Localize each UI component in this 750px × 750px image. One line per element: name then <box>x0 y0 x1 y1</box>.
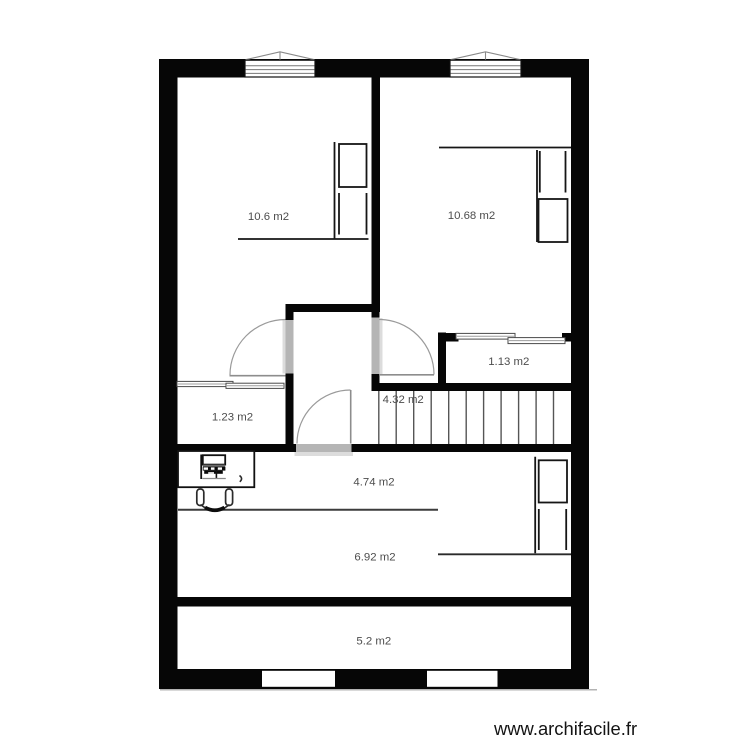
svg-text:4.74 m2: 4.74 m2 <box>353 477 394 489</box>
svg-text:1.23 m2: 1.23 m2 <box>212 412 253 424</box>
svg-text:www.archifacile.fr: www.archifacile.fr <box>493 718 637 739</box>
svg-text:10.68 m2: 10.68 m2 <box>448 210 496 222</box>
svg-text:10.6 m2: 10.6 m2 <box>248 211 289 223</box>
svg-text:6.92 m2: 6.92 m2 <box>354 552 395 564</box>
svg-text:5.2 m2: 5.2 m2 <box>356 636 391 648</box>
svg-text:4.32 m2: 4.32 m2 <box>383 394 424 406</box>
svg-text:1.13 m2: 1.13 m2 <box>488 356 529 368</box>
